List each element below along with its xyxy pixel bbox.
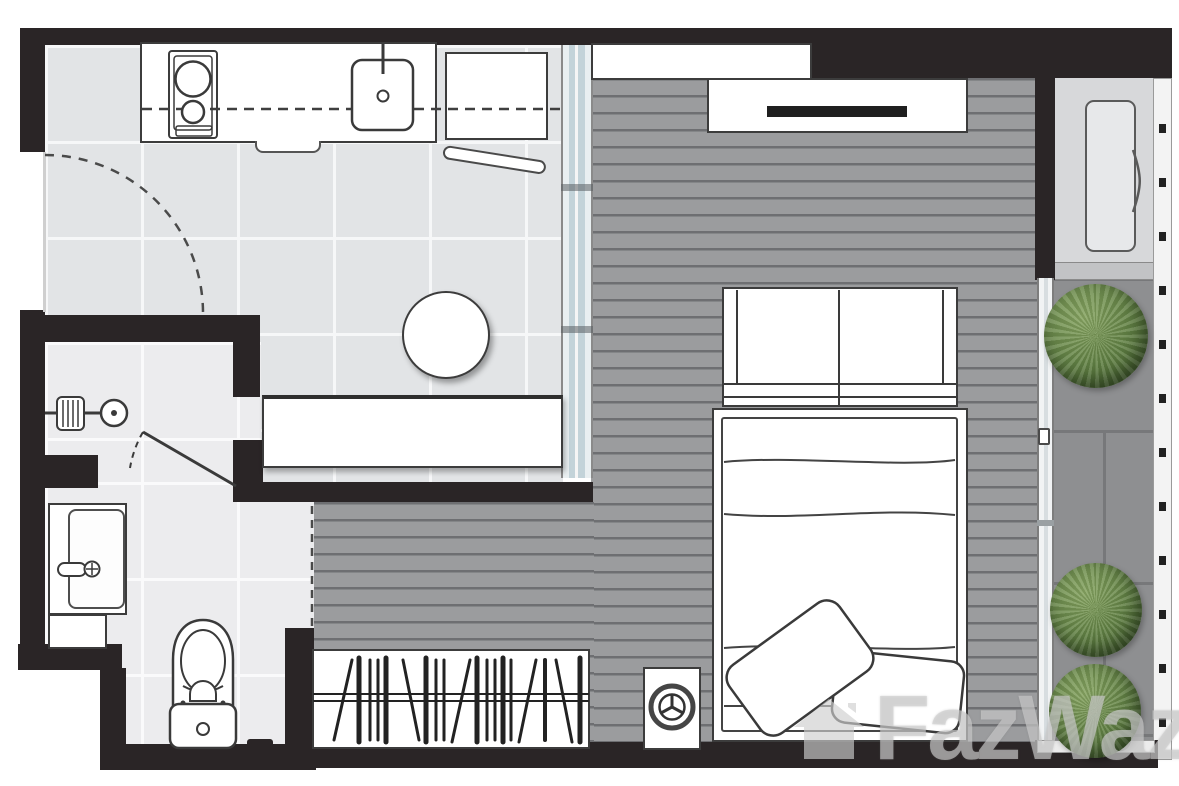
floor-plan: FazWaz xyxy=(0,0,1179,786)
wall-bath-right xyxy=(285,628,314,746)
balcony-door-handle xyxy=(1038,428,1050,445)
wall-shower-top xyxy=(20,315,260,342)
wall-corridor-top xyxy=(233,482,593,502)
plant xyxy=(1044,284,1148,388)
sliding-glass-partition xyxy=(561,45,593,478)
vanity-basin xyxy=(68,509,125,609)
exterior-patch xyxy=(0,670,100,786)
wall-step-v xyxy=(100,668,126,748)
vanity-cabinet xyxy=(48,614,107,649)
refrigerator-icon xyxy=(445,52,548,140)
plant xyxy=(1050,563,1142,657)
balcony-door-joint xyxy=(1037,520,1054,526)
partition-joint xyxy=(561,326,593,333)
round-table xyxy=(402,291,490,379)
counter-handle xyxy=(255,141,321,153)
entry-opening-edge xyxy=(43,152,46,312)
partition-joint xyxy=(561,184,593,191)
ac-unit-icon xyxy=(1085,100,1136,252)
watermark-text: FazWaz xyxy=(874,676,1179,781)
wall-shower-right xyxy=(233,315,260,397)
wall-balcony-left xyxy=(1035,78,1055,280)
wall-shelf xyxy=(591,43,812,80)
balcony-railing xyxy=(1153,78,1172,760)
bench-counter xyxy=(262,395,563,468)
wardrobe xyxy=(722,287,958,407)
stove-icon xyxy=(168,50,218,139)
washing-machine-icon xyxy=(643,667,701,750)
railing-posts xyxy=(1159,79,1166,759)
wall-left-upper xyxy=(20,28,45,152)
watermark: FazWaz xyxy=(792,676,1179,781)
wall-shower-stub xyxy=(20,455,98,488)
door-stop xyxy=(247,739,273,748)
wall-bottom-bath xyxy=(100,744,316,770)
ledge-divider xyxy=(1054,262,1155,280)
house-icon xyxy=(792,697,866,761)
clothes-rack xyxy=(312,649,590,749)
tv xyxy=(767,106,907,117)
